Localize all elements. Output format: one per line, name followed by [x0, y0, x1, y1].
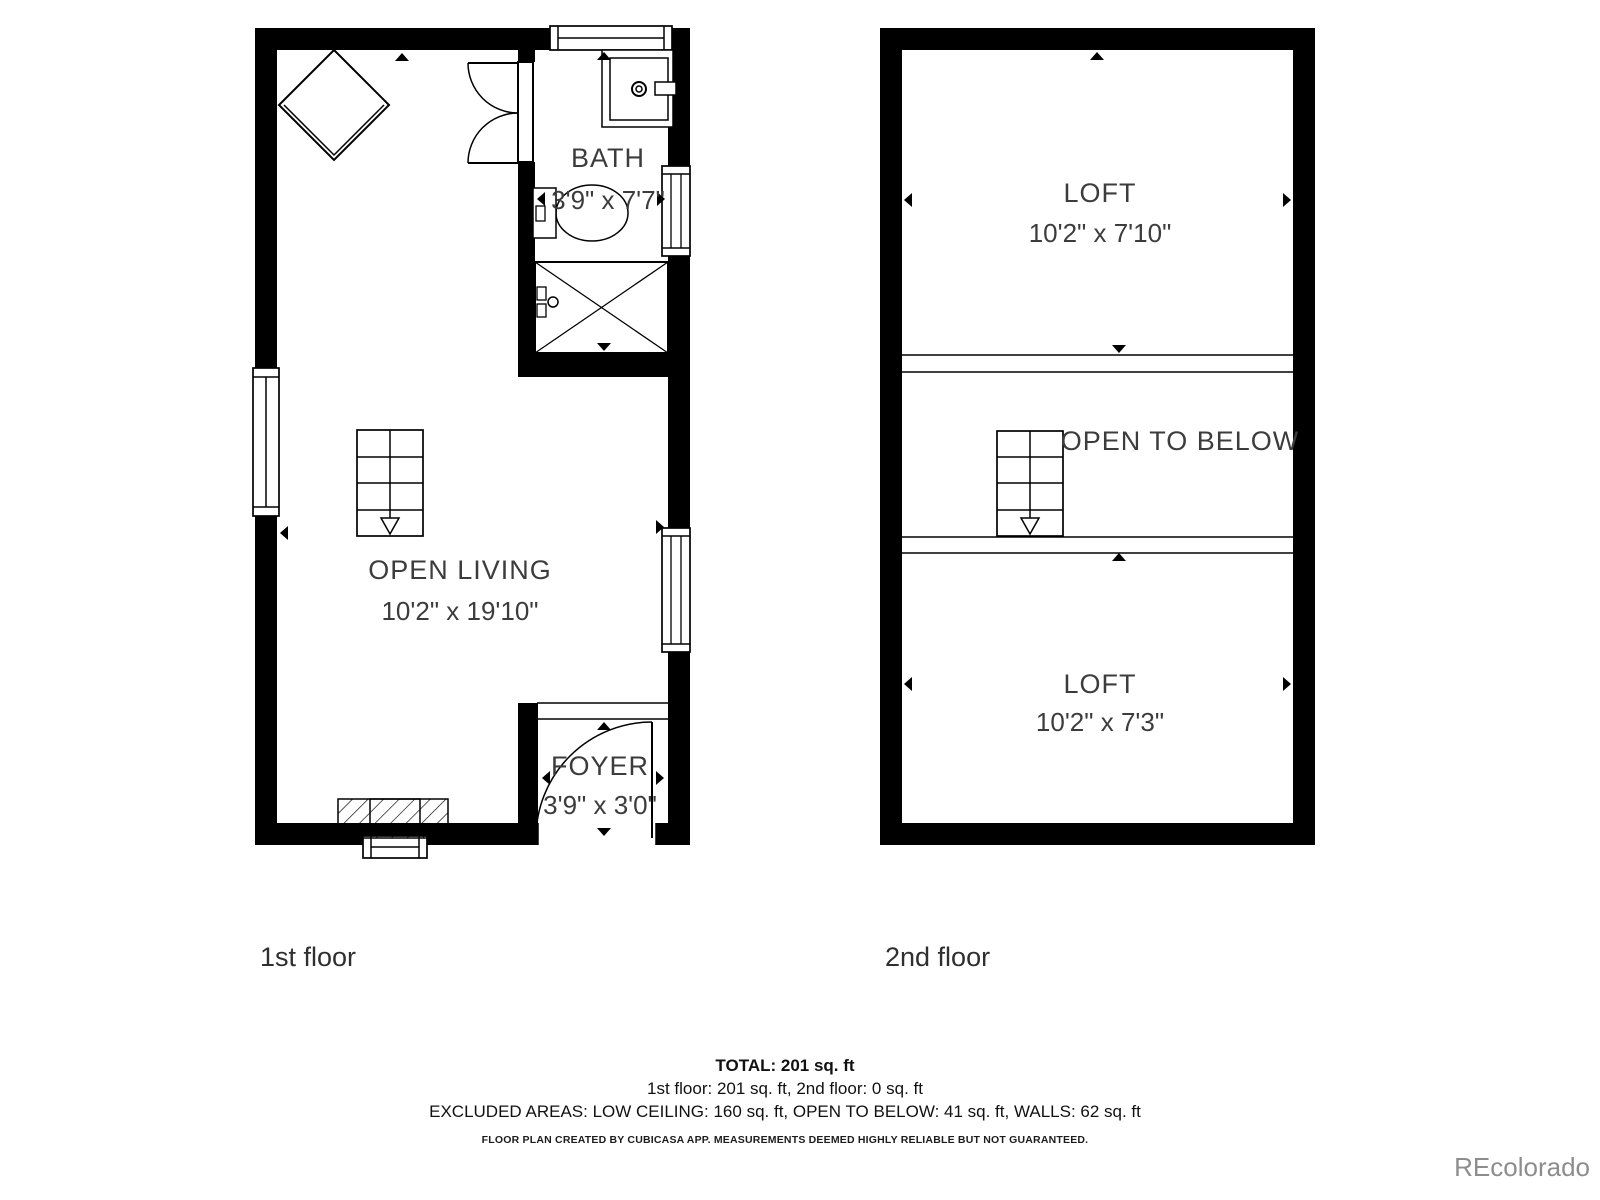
open-living-label: OPEN LIVING — [368, 555, 552, 585]
recolorado-watermark: REcolorado — [1454, 1152, 1590, 1183]
foyer-label: FOYER — [551, 751, 649, 781]
window-left — [253, 368, 279, 516]
disclaimer: FLOOR PLAN CREATED BY CUBICASA APP. MEAS… — [0, 1134, 1570, 1146]
second-floor-plan: LOFT 10'2" x 7'10" OPEN TO BELOW LOFT 10… — [880, 28, 1315, 845]
entry-door-opening — [538, 823, 656, 845]
bath-sink — [602, 50, 676, 127]
loft-divider-upper — [902, 355, 1293, 372]
foyer-opening — [537, 703, 668, 719]
loft-upper-dims: 10'2" x 7'10" — [1029, 218, 1172, 248]
open-living-dims: 10'2" x 19'10" — [381, 596, 538, 626]
excluded-areas: EXCLUDED AREAS: LOW CEILING: 160 sq. ft,… — [0, 1100, 1570, 1123]
window-right-living — [662, 528, 690, 652]
bath-dims: 3'9" x 7'7" — [551, 185, 665, 215]
stairs-second-floor — [997, 431, 1063, 536]
second-floor-label: 2nd floor — [885, 942, 990, 973]
foyer-dims: 3'9" x 3'0" — [543, 790, 657, 820]
fireplace-unit — [338, 799, 448, 838]
total-area: TOTAL: 201 sq. ft — [0, 1054, 1570, 1077]
window-top-bath — [550, 26, 672, 50]
stairs-first-floor — [357, 430, 423, 536]
loft-lower-dims: 10'2" x 7'3" — [1036, 707, 1164, 737]
open-to-below-label: OPEN TO BELOW — [1061, 426, 1300, 456]
area-summary: TOTAL: 201 sq. ft 1st floor: 201 sq. ft,… — [0, 1054, 1570, 1146]
first-floor-label: 1st floor — [260, 942, 356, 973]
bath-double-door — [468, 62, 536, 163]
floor-plan-graphic: BATH 3'9" x 7'7" OPEN LIVING 10'2" x 19'… — [0, 0, 1600, 1200]
first-floor-plan: BATH 3'9" x 7'7" OPEN LIVING 10'2" x 19'… — [253, 26, 690, 858]
bath-label: BATH — [571, 143, 645, 173]
table — [279, 50, 389, 160]
floor-plan-page: BATH 3'9" x 7'7" OPEN LIVING 10'2" x 19'… — [0, 0, 1600, 1200]
window-bottom-living — [363, 836, 427, 858]
shower — [535, 262, 668, 353]
loft-lower-label: LOFT — [1063, 669, 1136, 699]
loft-upper-label: LOFT — [1063, 178, 1136, 208]
floor-breakdown: 1st floor: 201 sq. ft, 2nd floor: 0 sq. … — [0, 1077, 1570, 1100]
loft-divider-lower — [902, 537, 1293, 553]
window-right-bath — [662, 166, 690, 256]
